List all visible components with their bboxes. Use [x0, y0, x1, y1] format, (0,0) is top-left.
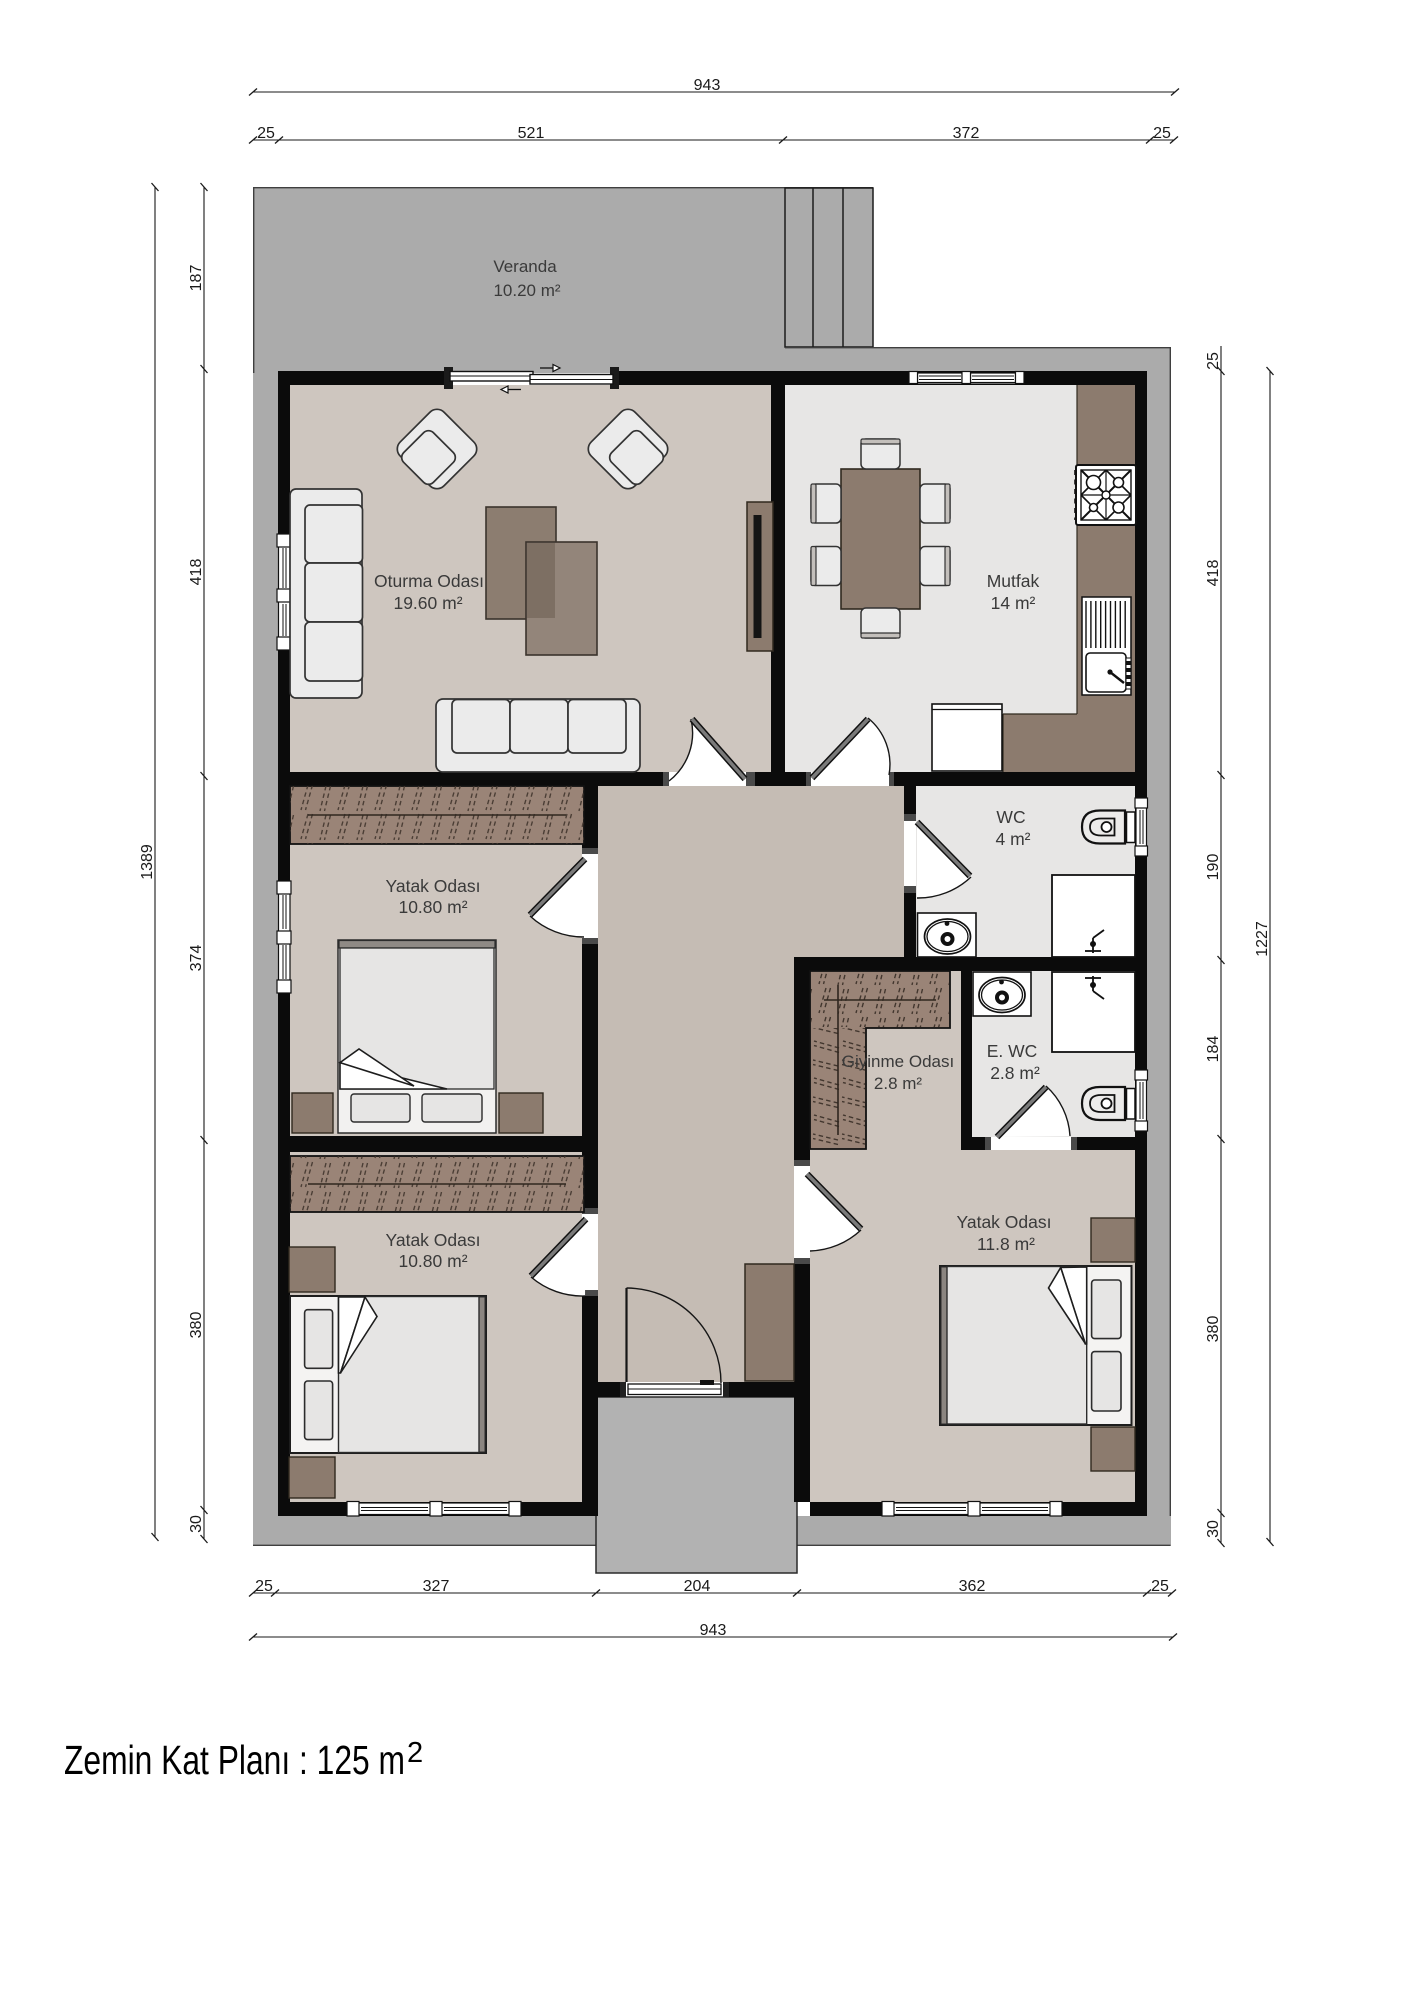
svg-text:Veranda: Veranda [493, 257, 557, 276]
svg-text:943: 943 [694, 77, 721, 94]
svg-text:4 m²: 4 m² [996, 829, 1031, 849]
svg-text:418: 418 [188, 559, 205, 586]
svg-text:10.80 m²: 10.80 m² [398, 1251, 467, 1271]
svg-text:19.60 m²: 19.60 m² [393, 593, 462, 613]
svg-text:187: 187 [188, 265, 205, 292]
svg-text:30: 30 [1205, 1520, 1222, 1538]
svg-text:362: 362 [959, 1578, 986, 1595]
svg-text:Giyinme Odası: Giyinme Odası [842, 1052, 954, 1071]
svg-text:943: 943 [700, 1622, 727, 1639]
svg-text:1389: 1389 [139, 844, 156, 880]
svg-text:372: 372 [953, 125, 980, 142]
svg-text:Zemin Kat Planı : 125 m: Zemin Kat Planı : 125 m [64, 1737, 405, 1783]
svg-text:14 m²: 14 m² [991, 593, 1036, 613]
svg-text:E. WC: E. WC [987, 1041, 1038, 1061]
svg-text:Mutfak: Mutfak [987, 571, 1040, 591]
svg-text:2.8 m²: 2.8 m² [874, 1074, 923, 1093]
svg-text:25: 25 [257, 125, 275, 142]
svg-text:418: 418 [1205, 560, 1222, 587]
svg-text:Yatak Odası: Yatak Odası [956, 1212, 1051, 1232]
svg-text:380: 380 [1205, 1316, 1222, 1343]
svg-text:2.8 m²: 2.8 m² [990, 1063, 1040, 1083]
svg-text:190: 190 [1205, 854, 1222, 881]
svg-text:10.20 m²: 10.20 m² [493, 281, 560, 300]
svg-text:30: 30 [188, 1515, 205, 1533]
svg-text:25: 25 [1205, 352, 1222, 370]
svg-text:521: 521 [518, 125, 545, 142]
svg-text:Oturma Odası: Oturma Odası [374, 571, 484, 591]
svg-text:Yatak Odası: Yatak Odası [385, 1230, 480, 1250]
svg-text:204: 204 [684, 1578, 711, 1595]
svg-text:10.80 m²: 10.80 m² [398, 897, 467, 917]
svg-text:184: 184 [1205, 1036, 1222, 1063]
svg-text:11.8 m²: 11.8 m² [977, 1234, 1035, 1254]
svg-text:25: 25 [1153, 125, 1171, 142]
svg-text:25: 25 [255, 1578, 273, 1595]
svg-text:1227: 1227 [1254, 921, 1271, 957]
svg-text:374: 374 [188, 945, 205, 972]
svg-text:2: 2 [407, 1737, 423, 1769]
svg-text:Yatak Odası: Yatak Odası [385, 876, 480, 896]
svg-text:WC: WC [996, 807, 1025, 827]
svg-text:25: 25 [1151, 1578, 1169, 1595]
svg-text:380: 380 [188, 1312, 205, 1339]
svg-text:327: 327 [423, 1578, 450, 1595]
